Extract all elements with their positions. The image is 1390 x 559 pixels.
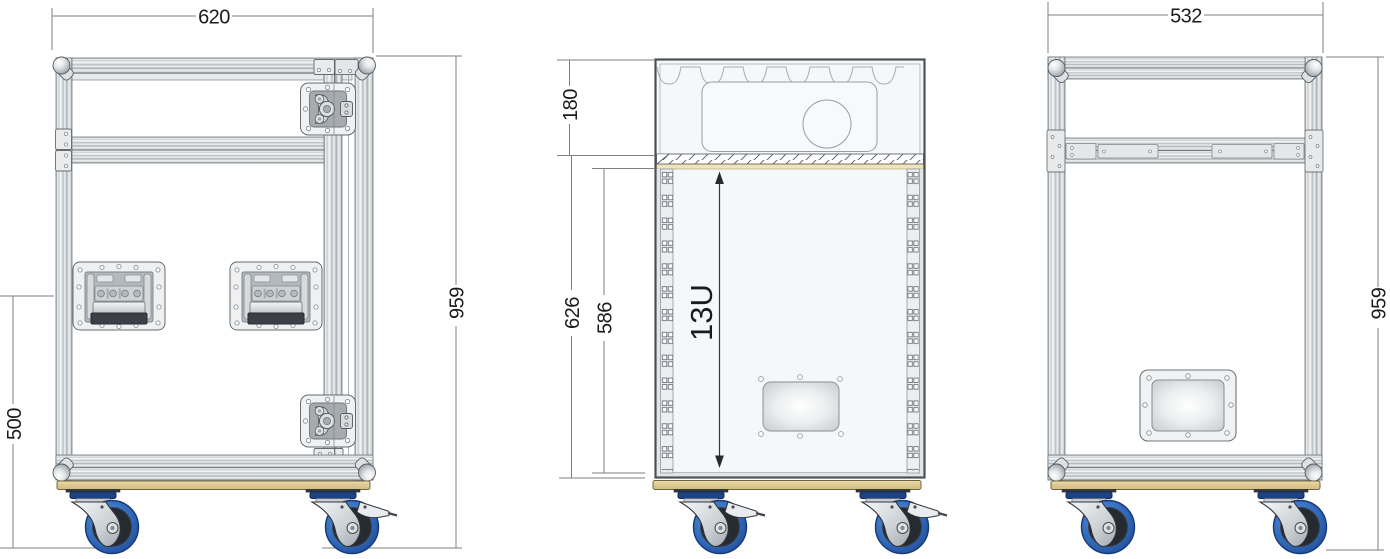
svg-text:180: 180 bbox=[560, 89, 582, 121]
svg-text:13U: 13U bbox=[684, 284, 719, 341]
svg-text:500: 500 bbox=[4, 408, 26, 440]
svg-text:959: 959 bbox=[447, 287, 469, 319]
svg-text:620: 620 bbox=[198, 7, 230, 29]
svg-text:626: 626 bbox=[562, 297, 584, 329]
svg-text:532: 532 bbox=[1170, 6, 1202, 28]
svg-text:959: 959 bbox=[1369, 287, 1390, 319]
svg-text:586: 586 bbox=[595, 302, 617, 334]
